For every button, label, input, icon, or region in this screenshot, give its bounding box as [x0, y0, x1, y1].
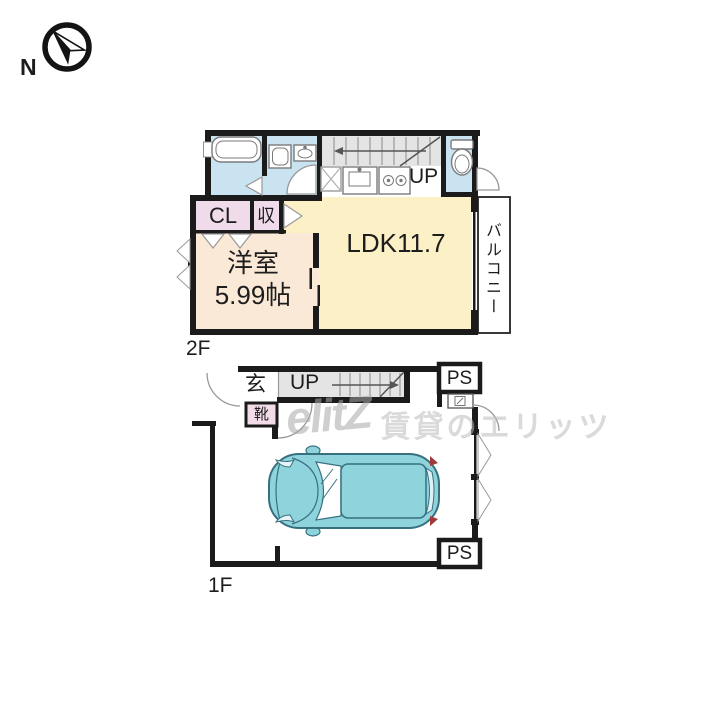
toilet-door-swing — [477, 168, 499, 190]
kitchen-sink-icon — [343, 167, 377, 194]
bath-window — [204, 142, 213, 157]
hall-door-swing — [278, 403, 312, 438]
floor-2f-name: 2F — [186, 338, 211, 359]
gas-stove-icon — [379, 167, 410, 194]
ldk-label: LDK11.7 — [320, 230, 472, 256]
toilet-icon — [451, 140, 473, 175]
garage-opening-marker — [478, 479, 491, 521]
bathtub-icon — [212, 137, 261, 162]
entrance-door-swing — [207, 373, 240, 406]
bedroom-size-label: 5.99帖 — [192, 282, 314, 308]
refrigerator-space-icon — [321, 167, 341, 191]
window-marker — [177, 265, 190, 289]
stairs-up-label-2f: UP — [409, 166, 438, 187]
floor-1f-plan — [192, 364, 499, 567]
floor-1f-name: 1F — [208, 575, 233, 596]
ldk-area — [319, 197, 472, 329]
compass-north-label: N — [20, 56, 37, 79]
balcony-label: バルコニー — [483, 222, 499, 317]
car-top-view-icon — [269, 446, 439, 536]
washbasin-icon — [294, 145, 316, 161]
entrance-label: 玄 — [245, 374, 266, 395]
bedroom-name-label: 洋室 — [192, 250, 314, 276]
shoe-cabinet-label: 靴 — [247, 407, 276, 422]
compass-icon — [44, 23, 89, 69]
garage-opening-marker — [478, 434, 491, 476]
window-marker — [177, 239, 190, 263]
pipe-space-top-label: PS — [439, 369, 480, 388]
pipe-space-bottom-label: PS — [439, 544, 480, 563]
floor-plan-page: N CL 収 洋室 5.99帖 LDK11.7 バルコニー UP 2F 玄 靴 … — [0, 0, 720, 720]
utility-meter-icon — [448, 394, 473, 408]
washing-machine-icon — [269, 145, 291, 168]
floor-plan-drawing — [0, 0, 720, 720]
closet-cl-label: CL — [194, 205, 252, 227]
stairs-up-label-1f: UP — [290, 372, 319, 393]
closet-shu-label: 収 — [251, 207, 281, 225]
